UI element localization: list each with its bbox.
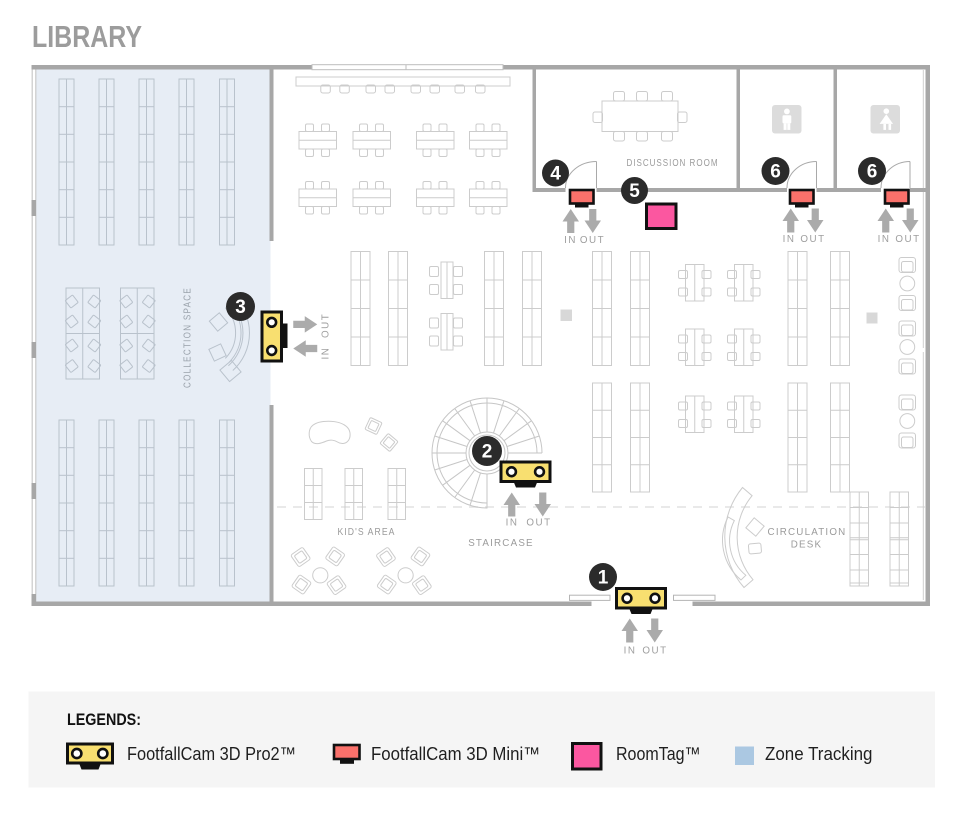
svg-text:CIRCULATION: CIRCULATION xyxy=(768,527,847,538)
svg-text:IN: IN xyxy=(564,235,577,246)
svg-text:IN: IN xyxy=(878,234,891,245)
svg-text:OUT: OUT xyxy=(895,234,920,245)
svg-text:IN: IN xyxy=(321,347,332,360)
svg-text:5: 5 xyxy=(629,181,640,202)
svg-text:DESK: DESK xyxy=(791,540,822,551)
svg-text:Zone Tracking: Zone Tracking xyxy=(765,743,873,764)
svg-text:DISCUSSION ROOM: DISCUSSION ROOM xyxy=(627,158,719,169)
svg-text:LEGENDS:: LEGENDS: xyxy=(67,711,141,729)
svg-text:6: 6 xyxy=(770,162,781,183)
svg-text:3: 3 xyxy=(235,297,246,318)
svg-text:OUT: OUT xyxy=(642,646,667,657)
svg-text:1: 1 xyxy=(598,568,609,589)
svg-text:6: 6 xyxy=(867,162,878,183)
svg-text:FootfallCam 3D Mini™: FootfallCam 3D Mini™ xyxy=(371,743,540,764)
svg-text:OUT: OUT xyxy=(800,234,825,245)
svg-text:OUT: OUT xyxy=(526,518,551,529)
svg-text:STAIRCASE: STAIRCASE xyxy=(468,538,534,549)
svg-text:OUT: OUT xyxy=(580,235,605,246)
svg-text:COLLECTION SPACE: COLLECTION SPACE xyxy=(182,287,194,388)
svg-text:2: 2 xyxy=(482,442,493,463)
svg-text:RoomTag™: RoomTag™ xyxy=(616,743,701,764)
svg-text:KID'S AREA: KID'S AREA xyxy=(338,527,396,538)
svg-text:FootfallCam 3D Pro2™: FootfallCam 3D Pro2™ xyxy=(127,743,296,764)
svg-text:IN: IN xyxy=(506,518,519,529)
svg-text:IN: IN xyxy=(624,646,637,657)
svg-text:LIBRARY: LIBRARY xyxy=(32,19,142,54)
svg-text:OUT: OUT xyxy=(321,313,332,338)
svg-text:4: 4 xyxy=(550,164,561,185)
svg-text:IN: IN xyxy=(783,234,796,245)
